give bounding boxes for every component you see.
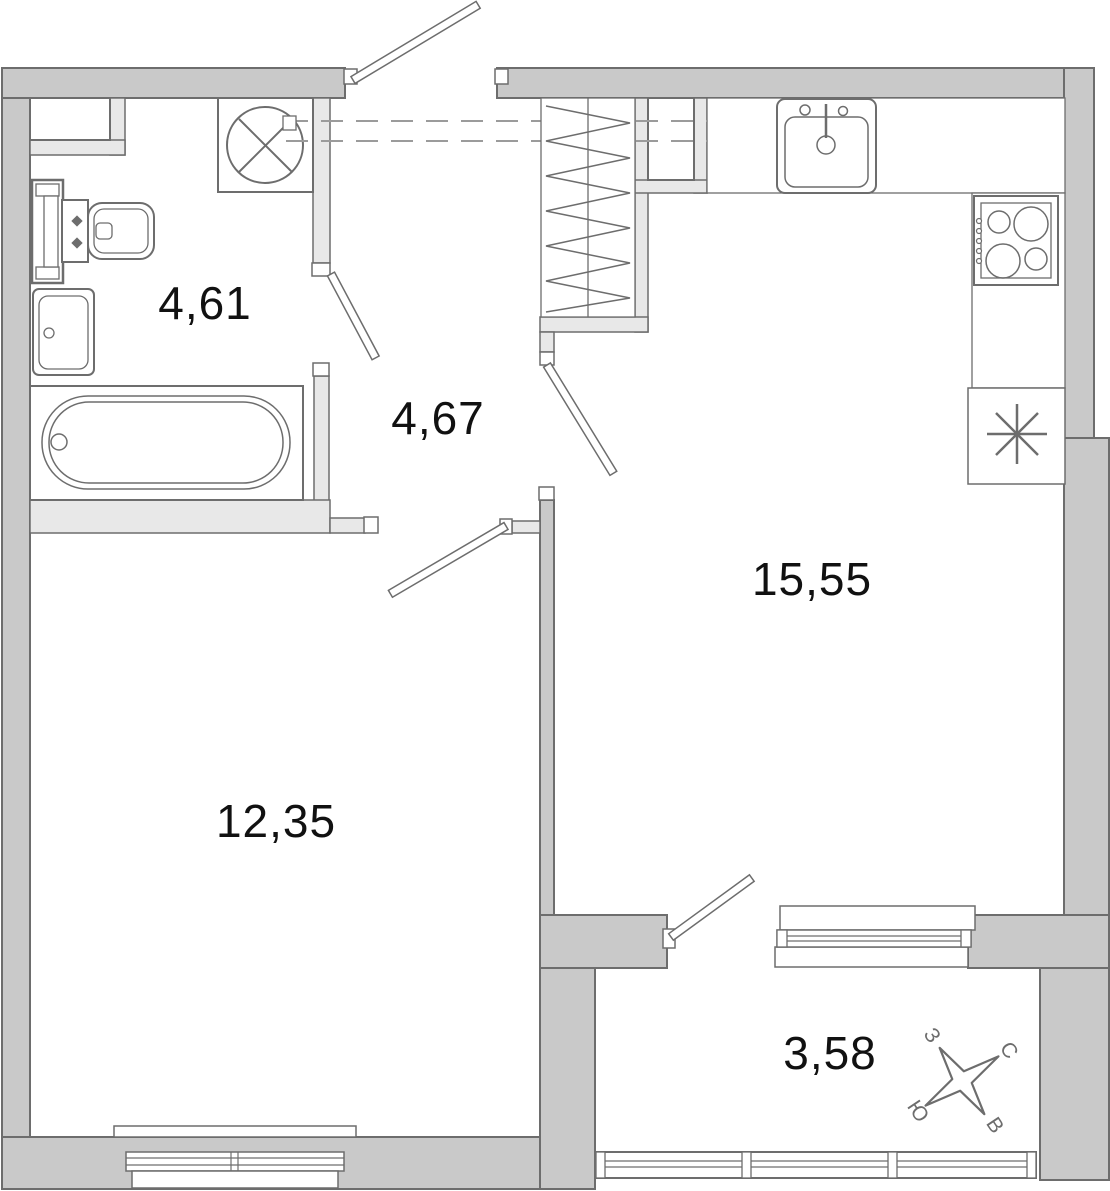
balcony-window bbox=[775, 906, 975, 967]
area-label-hallway: 4,67 bbox=[391, 391, 485, 445]
compass-north-label: С bbox=[995, 1038, 1023, 1063]
floor-plan: З С Ю В 4,61 4,67 15,55 12,35 3,58 bbox=[0, 0, 1110, 1191]
wardrobe-wall-right bbox=[635, 98, 648, 332]
compass-west-label: З bbox=[919, 1024, 945, 1047]
washing-machine bbox=[218, 98, 313, 192]
bedroom-door-stub bbox=[512, 521, 540, 533]
wall-right-lower bbox=[1064, 438, 1109, 916]
bedroom-door-jamb-left bbox=[364, 517, 378, 533]
wall-living-bottom bbox=[968, 915, 1109, 968]
niche-wall-horizontal bbox=[30, 140, 125, 155]
wall-top-right bbox=[497, 68, 1094, 98]
fridge bbox=[968, 388, 1065, 484]
bathroom-wall-right-upper bbox=[313, 98, 330, 263]
area-label-room: 12,35 bbox=[216, 794, 336, 848]
bedroom-door-leaf bbox=[388, 523, 508, 598]
hall-door-jamb-top bbox=[540, 352, 554, 365]
wall-balcony-left bbox=[540, 968, 595, 1189]
towel-radiator bbox=[32, 180, 63, 283]
bathroom-door-jamb-top bbox=[312, 263, 330, 276]
bedroom-window bbox=[114, 1126, 356, 1188]
wall-partition-living bbox=[540, 500, 554, 915]
floor-plan-drawing: З С Ю В bbox=[0, 0, 1110, 1191]
duct-shaft bbox=[648, 98, 694, 180]
compass-rose: З С Ю В bbox=[902, 1023, 1022, 1139]
duct-marker bbox=[283, 116, 296, 130]
entrance-door-leaf bbox=[351, 1, 480, 83]
bathtub bbox=[30, 386, 303, 500]
bathroom-wall-bottom-ext bbox=[330, 518, 365, 533]
shaft-wall-bottom bbox=[635, 180, 707, 193]
hall-door-leaf bbox=[544, 363, 617, 475]
wardrobe-wall-stub bbox=[540, 332, 554, 352]
kitchen-sink bbox=[777, 99, 876, 193]
balcony-glazing bbox=[596, 1152, 1036, 1178]
entrance-door-jamb-right bbox=[495, 69, 508, 84]
balcony-door-leaf bbox=[669, 875, 755, 940]
area-label-bathroom: 4,61 bbox=[158, 276, 252, 330]
wardrobe-wall-bottom bbox=[540, 317, 648, 332]
area-label-balcony: 3,58 bbox=[783, 1026, 877, 1080]
bathroom-door-jamb-bottom bbox=[313, 363, 329, 376]
wardrobe bbox=[541, 98, 635, 317]
wall-left bbox=[2, 68, 30, 1189]
wall-right-upper bbox=[1064, 68, 1094, 438]
stove bbox=[974, 196, 1058, 285]
wall-top-left bbox=[2, 68, 345, 98]
kitchen-counter-top bbox=[707, 98, 1065, 193]
bathroom-niche bbox=[30, 98, 110, 140]
toilet bbox=[62, 200, 154, 262]
compass-east-label: В bbox=[981, 1113, 1008, 1137]
wall-balcony-door-side bbox=[540, 915, 667, 968]
washbasin bbox=[33, 289, 94, 375]
bathroom-wall-right-lower bbox=[314, 376, 329, 504]
shaft-wall-right bbox=[694, 98, 707, 193]
bathroom-wall-bottom bbox=[30, 500, 330, 533]
hall-door-jamb-bottom bbox=[539, 487, 554, 500]
compass-south-label: Ю bbox=[902, 1096, 933, 1126]
bathroom-door-leaf bbox=[327, 272, 379, 360]
area-label-kitchen-living: 15,55 bbox=[752, 552, 872, 606]
wall-balcony-right bbox=[1040, 968, 1109, 1180]
